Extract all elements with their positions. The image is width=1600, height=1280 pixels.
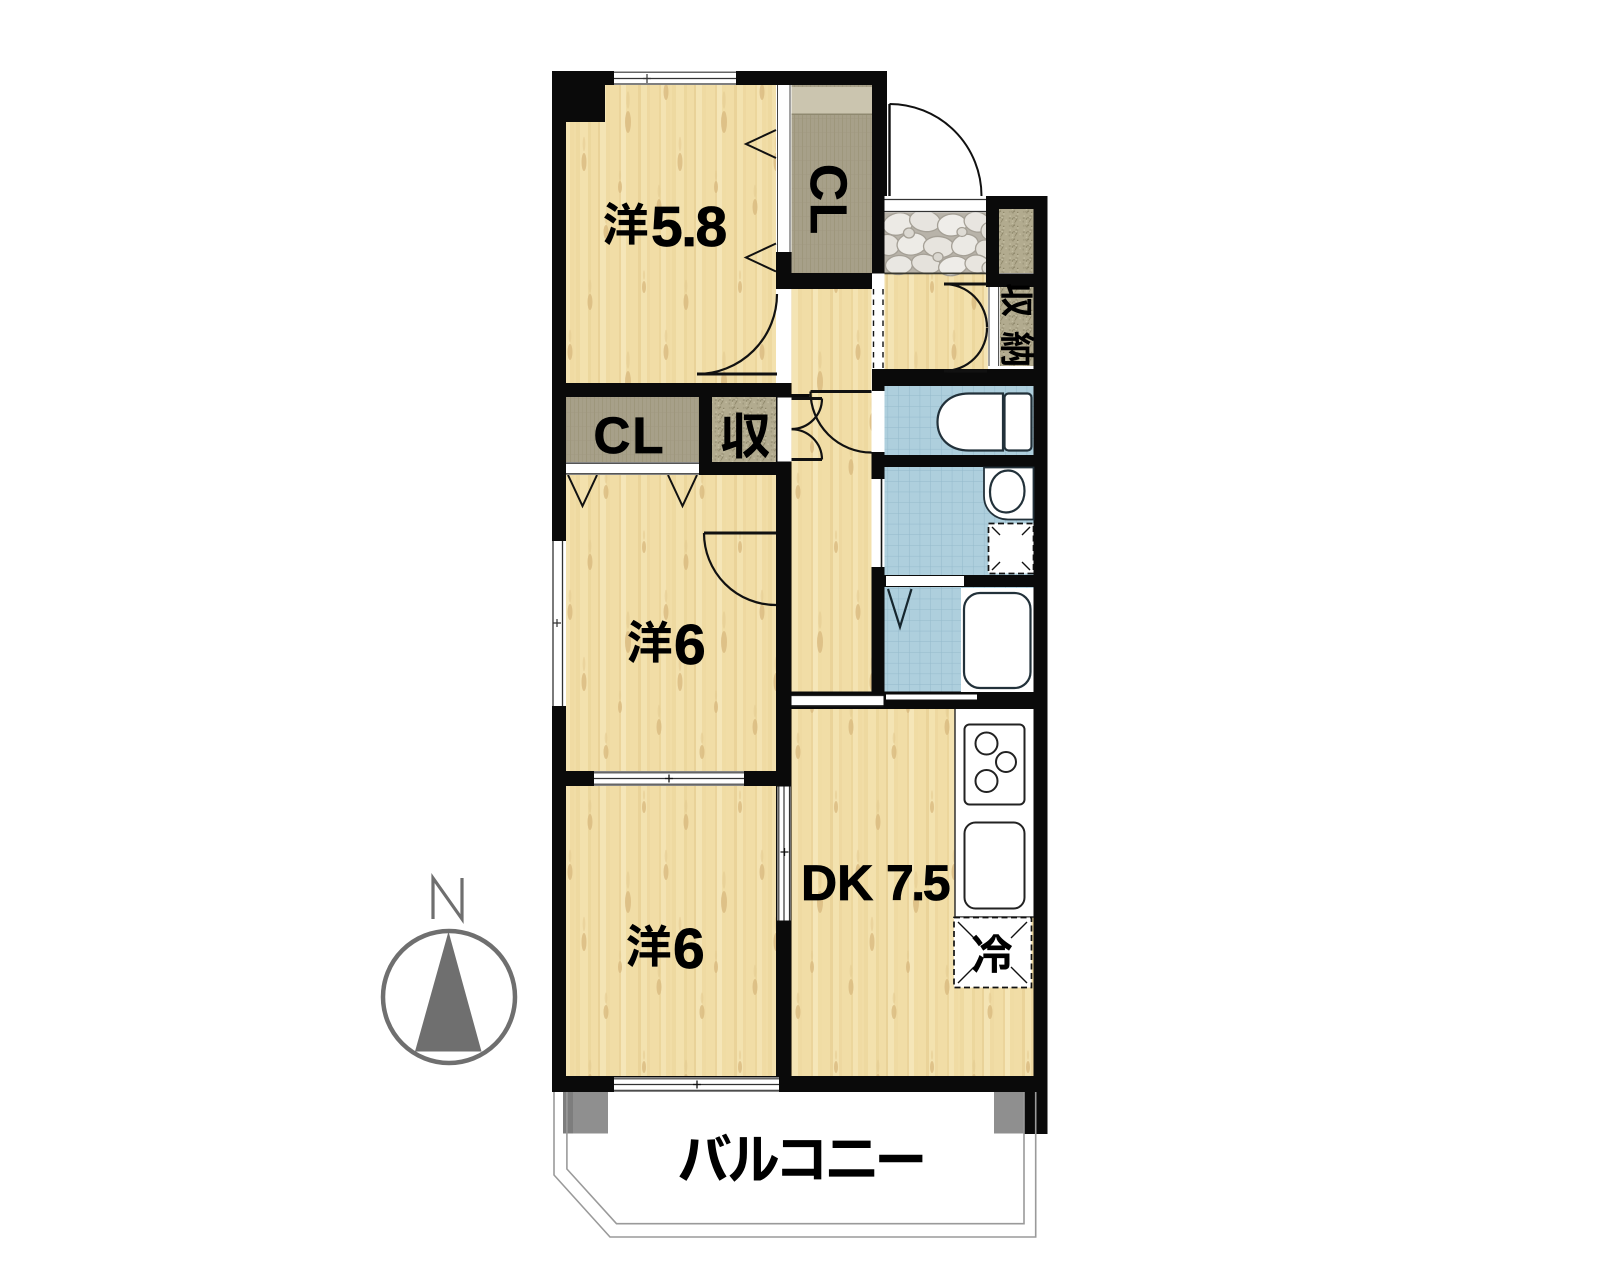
svg-text:DK: DK [801, 855, 873, 911]
svg-text:CL: CL [594, 407, 666, 464]
svg-text:5.8: 5.8 [651, 195, 726, 259]
svg-text:CL: CL [800, 164, 857, 236]
svg-text:6: 6 [674, 613, 706, 677]
svg-text:6: 6 [673, 917, 705, 981]
svg-text:7.5: 7.5 [886, 855, 950, 911]
